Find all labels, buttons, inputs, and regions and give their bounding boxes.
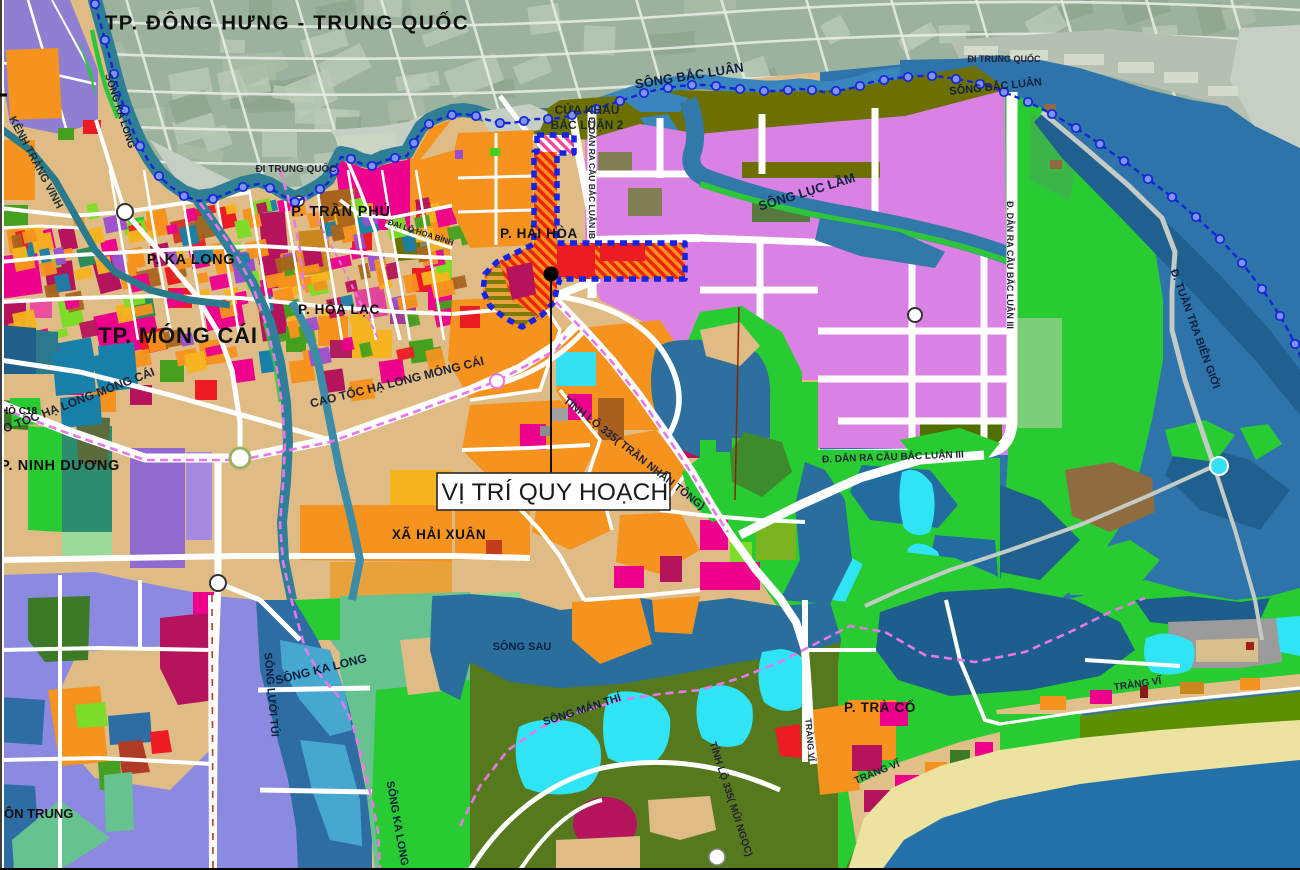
svg-text:ĐI TRUNG QUỐC: ĐI TRUNG QUỐC xyxy=(968,53,1041,64)
svg-text:ĐI TRUNG QUỐC: ĐI TRUNG QUỐC xyxy=(255,161,336,175)
svg-text:TP. MÓNG CÁI: TP. MÓNG CÁI xyxy=(98,323,258,348)
svg-text:Đ. DẪN RA CẦU BẮC LUẬN III: Đ. DẪN RA CẦU BẮC LUẬN III xyxy=(1005,201,1016,329)
svg-text:TP. ĐÔNG HƯNG - TRUNG QUỐC: TP. ĐÔNG HƯNG - TRUNG QUỐC xyxy=(105,11,470,35)
svg-text:VỊ TRÍ QUY HOẠCH: VỊ TRÍ QUY HOẠCH xyxy=(442,479,669,506)
svg-text:THÔN TRUNG: THÔN TRUNG xyxy=(0,806,73,821)
svg-text:P. HÒA LẠC: P. HÒA LẠC xyxy=(298,302,380,317)
svg-text:CỬA KHẨU: CỬA KHẨU xyxy=(555,102,620,117)
svg-text:P. NINH DƯƠNG: P. NINH DƯƠNG xyxy=(0,458,120,474)
svg-text:P. TRÀ CỔ: P. TRÀ CỔ xyxy=(844,700,916,715)
svg-text:XÃ HẢI XUÂN: XÃ HẢI XUÂN xyxy=(392,527,486,542)
svg-text:P. TRẦN PHÚ: P. TRẦN PHÚ xyxy=(291,202,391,220)
svg-text:P. KA LONG: P. KA LONG xyxy=(147,252,235,268)
svg-text:SÔNG SAU: SÔNG SAU xyxy=(493,640,552,653)
svg-text:Đ. DẪN RA CẦU BẮC LUẬN IB: Đ. DẪN RA CẦU BẮC LUẬN IB xyxy=(587,117,598,239)
svg-text:P. HẢI HÒA: P. HẢI HÒA xyxy=(500,226,578,241)
